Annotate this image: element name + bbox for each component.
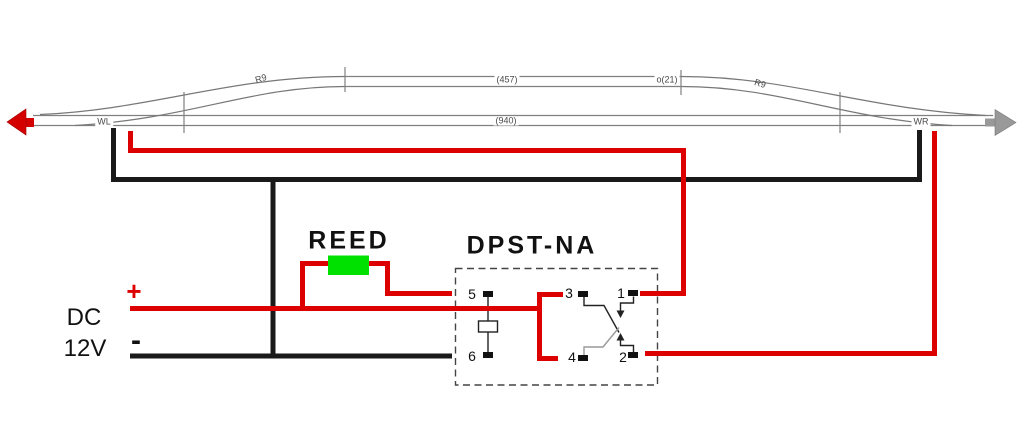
negative-terminal-label: - xyxy=(131,326,141,356)
turnout-right-label: WR xyxy=(912,118,931,127)
siding-length-label: (457) xyxy=(494,76,519,85)
relay-pad-5 xyxy=(483,291,493,297)
relay-coil xyxy=(479,321,498,332)
pin-1-label: 1 xyxy=(617,286,625,300)
relay-pad-4 xyxy=(578,355,588,361)
wire-red-feed-pins-3-4 xyxy=(540,295,564,359)
relay-contact-blade-3 xyxy=(584,297,619,333)
relay-pad-1 xyxy=(628,290,638,296)
direction-arrow-right xyxy=(985,110,1016,136)
wire-red-reed-branch xyxy=(303,264,453,311)
relay-contact-arrow-1 xyxy=(617,311,625,319)
pin-3-label: 3 xyxy=(565,286,573,300)
pin-6-label: 6 xyxy=(468,349,476,363)
pin-4-label: 4 xyxy=(568,350,576,364)
diagram-canvas xyxy=(0,0,1024,422)
wire-red-pin2-to-wr xyxy=(645,131,935,354)
reed-label: REED xyxy=(308,229,389,254)
right-arrow-head xyxy=(995,110,1016,136)
left-curve-rail-bottom xyxy=(75,87,345,126)
relay-pad-6 xyxy=(483,352,493,358)
pin-2-label: 2 xyxy=(619,350,627,364)
turnout-left-label: WL xyxy=(95,118,113,127)
power-name-line1: DC xyxy=(67,306,102,330)
relay-label: DPST-NA xyxy=(467,234,598,259)
left-arrow-head xyxy=(7,109,26,135)
pin-5-label: 5 xyxy=(468,287,476,301)
right-curve-rail-top xyxy=(681,77,986,116)
relay-contact-arrow-2 xyxy=(617,333,625,341)
direction-arrow-left xyxy=(7,109,34,135)
relay-pad-2 xyxy=(628,352,638,358)
power-name-line2: 12V xyxy=(64,337,107,361)
relay-contact-blade-4 xyxy=(584,328,619,356)
wire-red-wl-to-pin1 xyxy=(131,131,684,294)
relay-internals xyxy=(479,290,639,361)
main-length-label: (940) xyxy=(493,117,518,126)
relay-pad-3 xyxy=(578,291,588,297)
positive-terminal-label: + xyxy=(126,278,141,304)
wiring-diagram: WL WR R9 R9 (457) o(21) (940) REED DPST-… xyxy=(0,0,1024,422)
wire-black-turnout-bus xyxy=(114,128,920,180)
filler-length-label: o(21) xyxy=(654,76,679,85)
reed-switch-body xyxy=(328,256,369,276)
